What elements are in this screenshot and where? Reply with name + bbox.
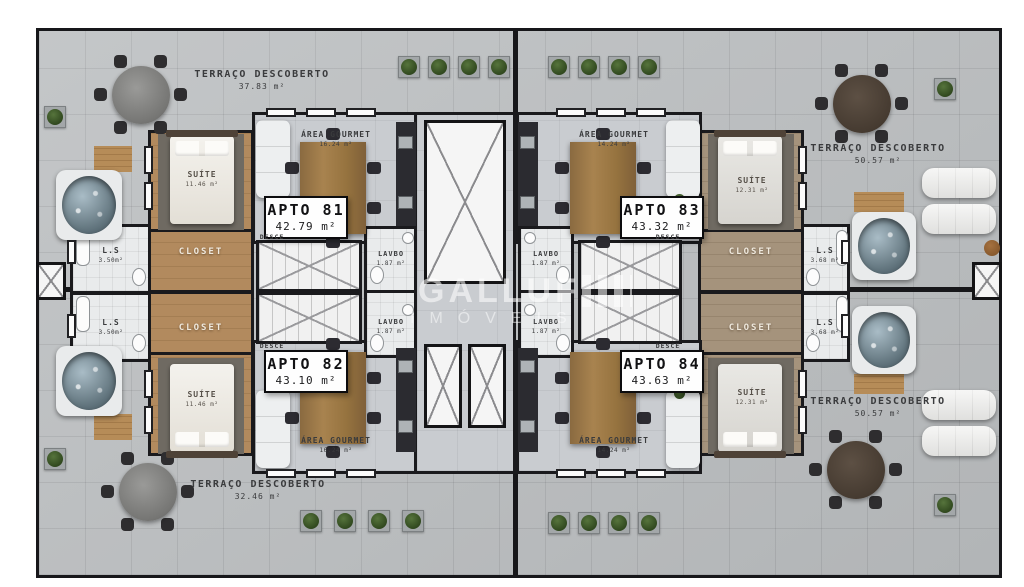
room-name: L.S [811,246,840,256]
window [596,108,626,117]
window [306,108,336,117]
terrace-name: TERRAÇO DESCOBERTO [190,478,325,491]
gourmet-82-label: ÁREA GOURMET 16.24 m² [301,436,371,455]
room-area: 1.87 m² [532,260,561,268]
plant [934,494,956,516]
desce-83-label: DESCE [656,233,681,241]
closet-83-label: CLOSET [729,247,774,259]
window [306,469,336,478]
lavbo-81-label: LAVBO 1.87 m² [377,250,406,268]
window [636,108,666,117]
room-name: LAVBO [532,250,561,259]
room-area: 3.68 m² [811,257,840,265]
apto-area: 42.79 m² [266,220,346,233]
room-name: ÁREA GOURMET [579,130,649,140]
window [144,146,153,174]
plant [44,106,66,128]
window [841,240,850,264]
plant [398,56,420,78]
toilet-icon [806,268,820,286]
sink-icon [520,196,535,209]
toilet-icon [132,268,146,286]
window [266,108,296,117]
watermark-logo [582,275,632,307]
window [798,182,807,210]
cooktop-icon [398,360,413,373]
terrace-name: TERRAÇO DESCOBERTO [194,68,329,81]
cooktop-icon [398,136,413,149]
apto-name: APTO 84 [622,355,702,373]
plant [608,512,630,534]
side-table [984,240,1000,256]
vent-shaft [36,262,66,300]
apto-name: APTO 83 [622,201,702,219]
room-area: 14.24 m² [579,141,649,149]
suite-82-label: SUÍTE 11.46 m² [186,390,219,409]
toilet-icon [370,334,384,352]
desce-82-label: DESCE [260,342,285,350]
toilet-icon [556,266,570,284]
terrace-name: TERRAÇO DESCOBERTO [810,395,945,408]
wood-deck [854,374,904,394]
sink-icon [398,420,413,433]
apto-area: 43.63 m² [622,374,702,387]
room-area: 14.24 m² [579,447,649,455]
room-area: 12.31 m² [736,399,769,407]
plant [578,512,600,534]
window [556,108,586,117]
plant [638,512,660,534]
window [798,406,807,434]
room-area: 16.24 m² [301,447,371,455]
room-area: 3.50m² [99,329,124,337]
plant [44,448,66,470]
room-name: SUÍTE [186,390,219,400]
window [144,406,153,434]
terrace-table [827,441,885,499]
terrace-table [112,66,170,124]
terrace-area: 37.83 m² [194,82,329,92]
window [841,314,850,338]
plant [608,56,630,78]
room-area: 12.31 m² [736,187,769,195]
toilet-icon [556,334,570,352]
room-closet-81 [148,229,254,293]
room-name: L.S [99,318,124,328]
room-area: 3.50m² [99,257,124,265]
room-area: 11.46 m² [186,181,219,189]
apto-82-tag: APTO 82 43.10 m² [264,350,348,393]
apto-84-tag: APTO 84 43.63 m² [620,350,704,393]
suite-84-label: SUÍTE 12.31 m² [736,388,769,407]
stairs-81 [256,240,362,292]
window [556,469,586,478]
suite-83-label: SUÍTE 12.31 m² [736,176,769,195]
window [67,314,76,338]
sun-lounger [922,204,996,234]
lavbo-83-label: LAVBO 1.87 m² [532,250,561,268]
terrace-area: 50.57 m² [810,156,945,166]
lavbo-84-label: LAVBO 1.87 m² [532,318,561,336]
apto-area: 43.32 m² [622,220,702,233]
sink-icon [402,232,414,244]
stairs-82 [256,292,362,344]
room-area: 1.87 m² [377,328,406,336]
window [798,146,807,174]
room-area: 1.87 m² [532,328,561,336]
ls-82-label: L.S 3.50m² [99,318,124,337]
room-name: ÁREA GOURMET [579,436,649,446]
window [144,182,153,210]
plant [368,510,390,532]
sink-icon [524,304,536,316]
cooktop-icon [520,360,535,373]
sofa [666,390,700,468]
bed [718,364,782,452]
plant [458,56,480,78]
bathtub-icon [76,296,90,332]
terrace-divider-wall [848,287,974,292]
ls-81-label: L.S 3.50m² [99,246,124,265]
room-closet-83 [698,229,804,293]
sun-lounger [922,426,996,456]
room-name: SUÍTE [736,388,769,398]
lavbo-82-label: LAVBO 1.87 m² [377,318,406,336]
window [346,108,376,117]
room-name: LAVBO [377,318,406,327]
jacuzzi-tub [858,312,910,368]
sink-icon [398,196,413,209]
elevator-shaft [468,344,506,428]
terrace-area: 50.57 m² [810,409,945,419]
plant [300,510,322,532]
desce-84-label: DESCE [656,342,681,350]
plant [934,78,956,100]
ls-84-label: L.S 3.68 m² [811,318,840,337]
gourmet-83-label: ÁREA GOURMET 14.24 m² [579,130,649,149]
toilet-icon [132,334,146,352]
wood-deck [94,146,132,172]
wood-deck [854,192,904,212]
wood-deck [94,414,132,440]
terrace-name: TERRAÇO DESCOBERTO [810,142,945,155]
cooktop-icon [520,136,535,149]
elevator-shaft [424,120,506,284]
ls-83-label: L.S 3.68 m² [811,246,840,265]
window [67,240,76,264]
jacuzzi-tub [858,218,910,274]
apto-area: 43.10 m² [266,374,346,387]
elevator-shaft [424,344,462,428]
gourmet-84-label: ÁREA GOURMET 14.24 m² [579,436,649,455]
room-name: L.S [811,318,840,328]
window [596,469,626,478]
room-area: 16.24 m² [301,141,371,149]
terrace-label-top-right: TERRAÇO DESCOBERTO 50.57 m² [810,142,945,166]
jacuzzi [852,306,916,374]
room-name: SUÍTE [736,176,769,186]
sofa [666,120,700,198]
closet-84-label: CLOSET [729,323,774,335]
window [798,370,807,398]
jacuzzi [56,346,122,416]
gourmet-81-label: ÁREA GOURMET 16.24 m² [301,130,371,149]
plant [428,56,450,78]
room-area: 3.68 m² [811,329,840,337]
closet-81-label: CLOSET [179,247,224,259]
room-area: 11.46 m² [186,401,219,409]
jacuzzi [852,212,916,280]
sun-lounger [922,168,996,198]
room-name: ÁREA GOURMET [301,436,371,446]
room-name: SUÍTE [186,170,219,180]
terrace-table [119,463,177,521]
sink-icon [520,420,535,433]
desce-81-label: DESCE [260,233,285,241]
terrace-table [833,75,891,133]
sofa [256,120,290,198]
plant [548,56,570,78]
terrace-label-top-left: TERRAÇO DESCOBERTO 37.83 m² [194,68,329,92]
window [144,370,153,398]
room-name: LAVBO [377,250,406,259]
plant [638,56,660,78]
terrace-area: 32.46 m² [190,492,325,502]
terrace-label-bottom-right: TERRAÇO DESCOBERTO 50.57 m² [810,395,945,419]
plant [402,510,424,532]
terrace-divider-wall [513,28,518,114]
closet-82-label: CLOSET [179,323,224,335]
vent-shaft [972,262,1002,300]
plant [578,56,600,78]
window [266,469,296,478]
window [636,469,666,478]
plant [488,56,510,78]
terrace-label-bottom-left: TERRAÇO DESCOBERTO 32.46 m² [190,478,325,502]
room-name: LAVBO [532,318,561,327]
jacuzzi [56,170,122,240]
toilet-icon [370,266,384,284]
terrace-divider-wall [513,472,518,578]
window [346,469,376,478]
sink-icon [524,232,536,244]
apto-name: APTO 82 [266,355,346,373]
sofa [256,390,290,468]
sink-icon [402,304,414,316]
plant [548,512,570,534]
room-area: 1.87 m² [377,260,406,268]
floor-plan: TERRAÇO DESCOBERTO 37.83 m² TERRAÇO DESC… [0,0,1024,587]
room-name: ÁREA GOURMET [301,130,371,140]
apto-name: APTO 81 [266,201,346,219]
suite-81-label: SUÍTE 11.46 m² [186,170,219,189]
jacuzzi-tub [62,176,116,234]
room-name: L.S [99,246,124,256]
jacuzzi-tub [62,352,116,410]
plant [334,510,356,532]
